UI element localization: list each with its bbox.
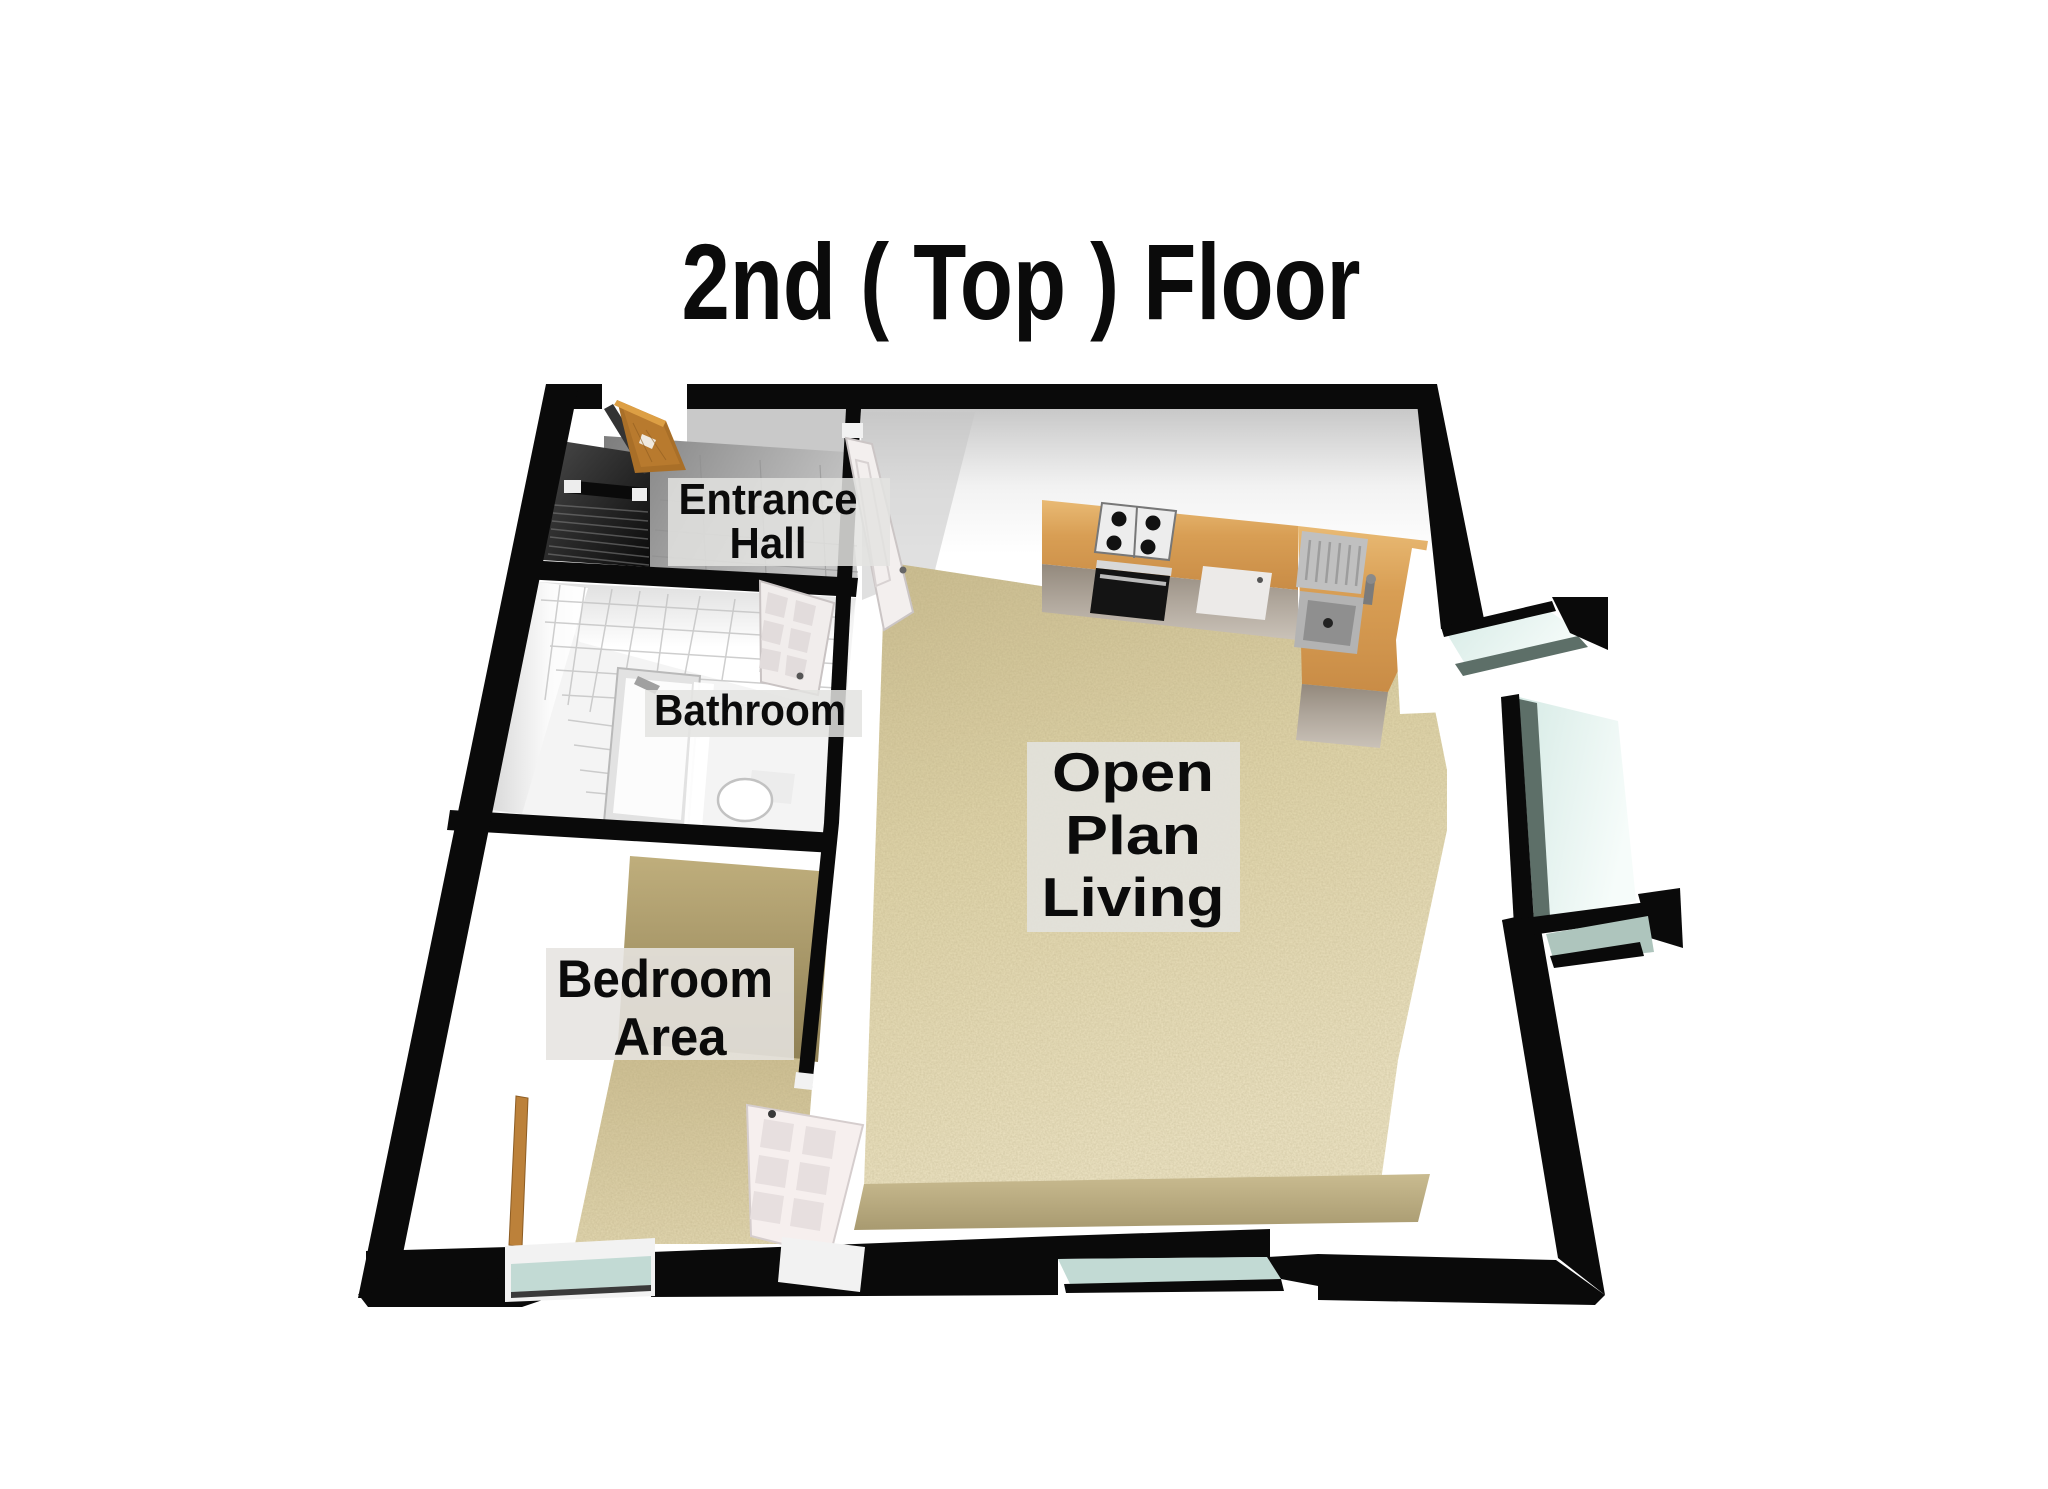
svg-text:Hall: Hall xyxy=(730,519,807,568)
svg-text:Bathroom: Bathroom xyxy=(654,686,846,735)
svg-text:Entrance: Entrance xyxy=(679,475,858,524)
svg-text:Open: Open xyxy=(1052,741,1214,803)
svg-text:2nd ( Top ) Floor: 2nd ( Top ) Floor xyxy=(682,221,1361,342)
svg-text:Bedroom: Bedroom xyxy=(557,950,773,1009)
svg-text:Living: Living xyxy=(1042,866,1225,928)
svg-text:Area: Area xyxy=(614,1008,727,1067)
svg-text:Plan: Plan xyxy=(1065,804,1201,866)
